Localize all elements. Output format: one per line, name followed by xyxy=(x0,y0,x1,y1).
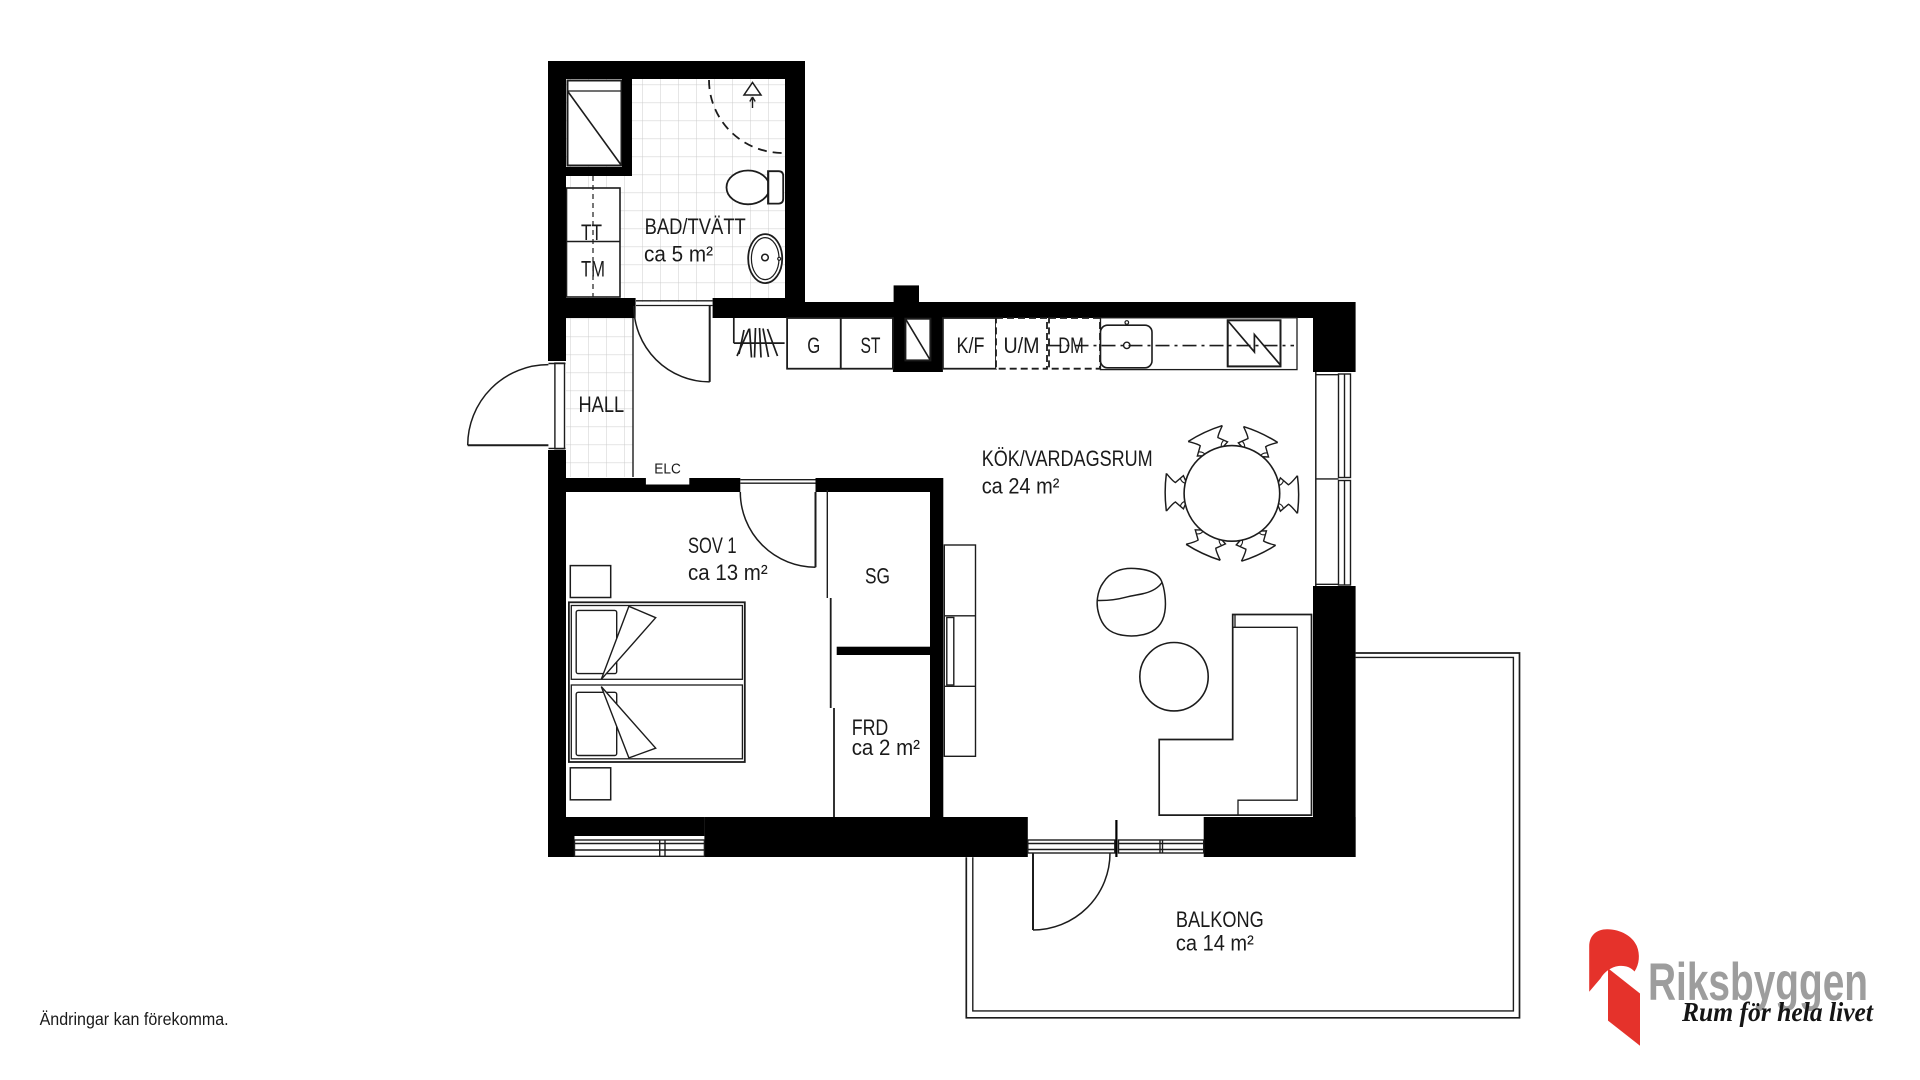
svg-text:BALKONG: BALKONG xyxy=(1176,907,1264,932)
svg-text:KÖK/VARDAGSRUM: KÖK/VARDAGSRUM xyxy=(982,446,1153,471)
svg-text:ST: ST xyxy=(861,333,881,358)
svg-text:K/F: K/F xyxy=(957,333,985,358)
svg-text:TM: TM xyxy=(581,257,605,282)
svg-text:DM: DM xyxy=(1058,333,1084,358)
svg-text:SG: SG xyxy=(865,563,890,588)
svg-text:ca 24 m²: ca 24 m² xyxy=(982,474,1060,499)
svg-text:TT: TT xyxy=(581,220,602,245)
svg-text:ELC: ELC xyxy=(654,460,681,477)
svg-text:ca 13 m²: ca 13 m² xyxy=(688,560,768,585)
svg-text:SOV 1: SOV 1 xyxy=(688,533,737,558)
svg-text:Ändringar kan förekomma.: Ändringar kan förekomma. xyxy=(40,1009,229,1029)
svg-text:Rum för hela livet: Rum för hela livet xyxy=(1681,997,1874,1027)
svg-text:HALL: HALL xyxy=(579,392,625,417)
svg-text:ca 14 m²: ca 14 m² xyxy=(1176,931,1254,956)
svg-text:ca 5 m²: ca 5 m² xyxy=(644,241,713,266)
svg-text:U/M: U/M xyxy=(1004,333,1040,358)
svg-text:BAD/TVÄTT: BAD/TVÄTT xyxy=(645,214,746,239)
svg-text:G: G xyxy=(807,333,820,358)
svg-text:ca 2 m²: ca 2 m² xyxy=(852,735,920,760)
